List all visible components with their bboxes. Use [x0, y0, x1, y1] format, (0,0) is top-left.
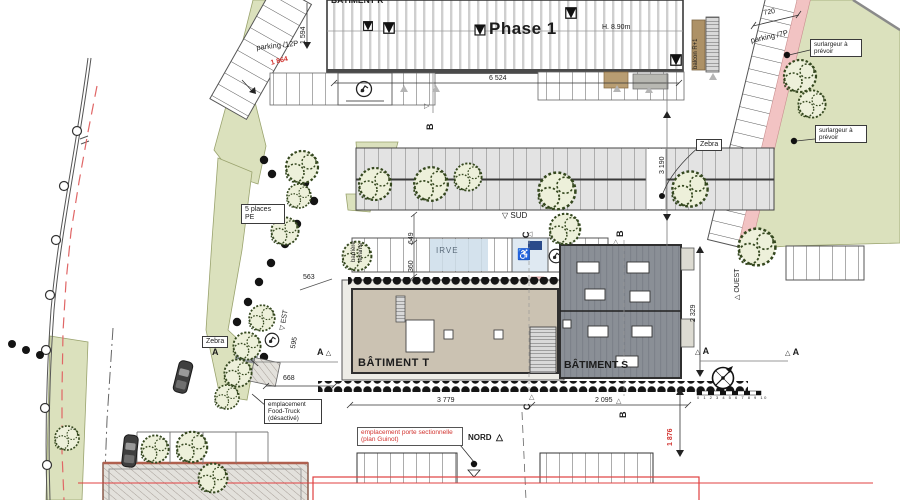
- car-icon: [172, 360, 193, 394]
- section-a-marker: △ A: [785, 347, 799, 358]
- dim-1594: 1 594: [300, 26, 308, 44]
- triangle-icon: ▽: [279, 325, 287, 332]
- dim-668: 668: [283, 375, 295, 383]
- roof-drain-icon: [364, 22, 373, 31]
- sud-label: ▽ SUD: [502, 212, 527, 221]
- surlargeur-note-1: surlargeur à prévoir: [810, 39, 862, 57]
- zebra-point-1: [659, 193, 665, 199]
- balcony-hatch: [706, 17, 719, 72]
- dim-1876: 1 876: [667, 428, 675, 446]
- dim-6524: 6 524: [489, 75, 507, 83]
- car-icon: [121, 434, 138, 467]
- stairs: [530, 327, 556, 373]
- triangle-icon: △: [496, 432, 503, 442]
- places-pe-label: 5 places PE: [241, 204, 285, 224]
- nord-label: NORD △: [468, 432, 503, 443]
- batiment-s-label: BÂTIMENT S: [564, 360, 628, 372]
- section-b-marker: B: [618, 412, 628, 419]
- roof-drain-icon: [475, 25, 485, 35]
- building-r: [270, 0, 719, 105]
- dim-563: 563: [303, 274, 315, 282]
- roof-drain-icon: [384, 23, 394, 33]
- moto-parking-icon: [265, 333, 279, 347]
- triangle-icon: △: [785, 350, 790, 357]
- balcon-label: balcon R+1: [693, 38, 700, 69]
- section-a-marker: A: [212, 347, 219, 357]
- section-c-marker: C: [522, 404, 532, 411]
- barriere-levante-label: barrière levante: [351, 222, 364, 262]
- section-a-marker: △ A: [695, 346, 709, 357]
- ouest-label: △ OUEST: [734, 269, 742, 300]
- wheelchair-icon: ♿: [517, 249, 531, 261]
- batiment-t-label: BÂTIMENT T: [358, 357, 430, 369]
- food-truck-note: emplacement Food-Truck (désactivé): [264, 399, 322, 424]
- dim-3779: 3 779: [437, 397, 455, 405]
- bottom-parking-rows: [357, 453, 653, 483]
- dim-3190: 3 190: [659, 156, 667, 174]
- roof-drain-icon: [671, 55, 681, 65]
- moto-parking-icon: [357, 82, 372, 97]
- triangle-icon: △: [529, 394, 534, 402]
- irve-label: IRVE: [436, 247, 459, 256]
- phase-1-label: Phase 1: [489, 19, 557, 38]
- section-a-marker: A △: [317, 347, 331, 358]
- batiment-r-label: BÂTIMENT R: [331, 0, 383, 6]
- zebra-label-1: Zebra: [696, 139, 722, 151]
- triangle-icon: ▷: [424, 103, 429, 111]
- triangle-icon: ◁: [527, 231, 532, 239]
- dim-649: 649: [408, 232, 416, 244]
- dim-2329: 2 329: [690, 304, 698, 322]
- porte-sectionnelle-note: emplacement porte sectionnelle (plan Gui…: [357, 427, 463, 446]
- section-b-marker: B: [425, 124, 435, 131]
- triangle-icon: △: [734, 295, 741, 300]
- building-height-label: H. 8.90m: [602, 24, 630, 32]
- surlargeur-note-2: surlargeur à prévoir: [815, 125, 867, 143]
- section-b-marker: B: [615, 231, 625, 238]
- dim-2095: 2 095: [595, 397, 613, 405]
- triangle-icon: ▽: [502, 211, 508, 220]
- north-compass: [713, 366, 734, 389]
- site-plan: BÂTIMENT R Phase 1 H. 8.90m parking /12P…: [0, 0, 900, 500]
- roof-drain-icon: [566, 8, 576, 18]
- triangle-icon: △: [616, 398, 621, 406]
- triangle-icon: △: [695, 349, 700, 356]
- triangle-icon: △: [326, 350, 331, 357]
- triangle-icon: △: [613, 239, 618, 247]
- dim-360: 360: [408, 260, 416, 272]
- scale-bar-numbers: 0 1 2 3 4 5 6 7 8 9 10: [697, 396, 768, 400]
